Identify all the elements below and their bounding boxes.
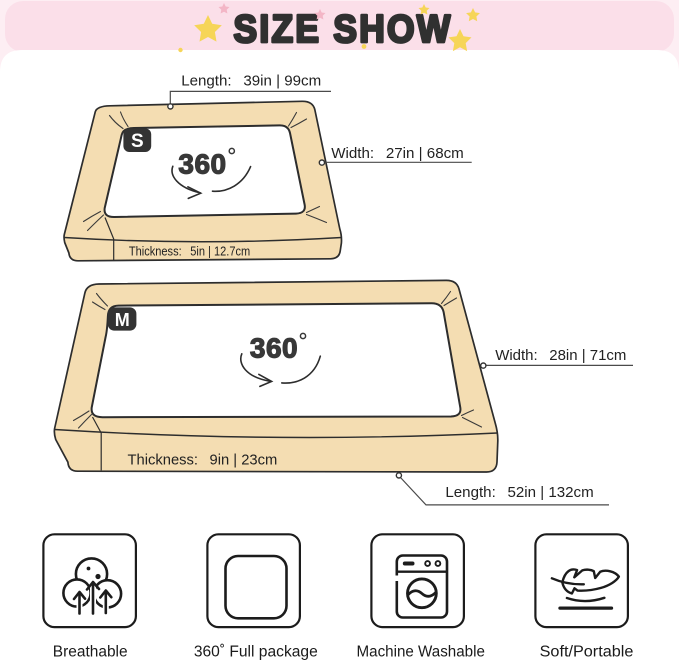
svg-text:SIZE SHOW: SIZE SHOW xyxy=(234,8,453,51)
svg-text:360˚ Full package: 360˚ Full package xyxy=(194,644,318,661)
svg-text:Thickness: 9in | 23cm: Thickness: 9in | 23cm xyxy=(128,453,278,469)
svg-text:Width: 28in | 71cm: Width: 28in | 71cm xyxy=(495,347,626,364)
svg-text:Length: 52in | 132cm: Length: 52in | 132cm xyxy=(445,484,593,501)
svg-text:Length: 39in | 99cm: Length: 39in | 99cm xyxy=(181,73,321,90)
svg-text:Soft/Portable: Soft/Portable xyxy=(540,644,634,661)
svg-text:Width: 27in | 68cm: Width: 27in | 68cm xyxy=(331,145,464,162)
svg-text:M: M xyxy=(115,310,130,330)
svg-text:Breathable: Breathable xyxy=(53,644,128,661)
svg-text:360: 360 xyxy=(250,333,298,364)
svg-text:S: S xyxy=(131,131,144,152)
svg-text:Machine Washable: Machine Washable xyxy=(357,644,485,661)
svg-text:Thickness: 5in | 12.7cm: Thickness: 5in | 12.7cm xyxy=(129,244,250,259)
svg-text:360: 360 xyxy=(178,149,226,180)
